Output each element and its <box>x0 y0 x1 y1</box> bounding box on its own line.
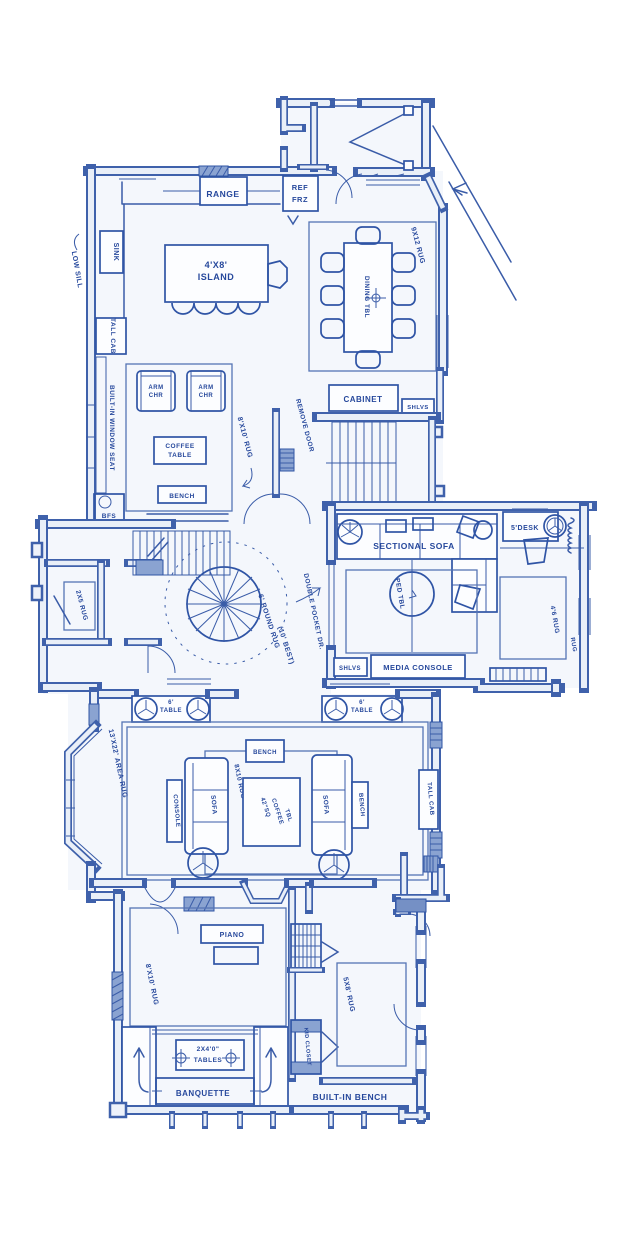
svg-text:6': 6' <box>168 700 174 706</box>
svg-text:FRZ: FRZ <box>292 195 308 204</box>
svg-text:COFFEE: COFFEE <box>165 443 195 450</box>
svg-text:6': 6' <box>359 700 365 706</box>
svg-text:2X4'0": 2X4'0" <box>197 1046 220 1053</box>
svg-text:ARM: ARM <box>198 385 213 391</box>
svg-text:CHR: CHR <box>199 393 214 399</box>
svg-text:CABINET: CABINET <box>343 395 382 404</box>
svg-text:TABLE: TABLE <box>168 452 192 459</box>
svg-text:BUILT-IN WINDOW SEAT: BUILT-IN WINDOW SEAT <box>108 385 115 471</box>
svg-text:CHR: CHR <box>149 393 164 399</box>
svg-text:DINING TBL: DINING TBL <box>363 276 370 318</box>
svg-text:BENCH: BENCH <box>169 493 195 500</box>
svg-text:RANGE: RANGE <box>206 189 239 199</box>
svg-text:MEDIA CONSOLE: MEDIA CONSOLE <box>383 663 453 672</box>
svg-text:BANQUETTE: BANQUETTE <box>176 1089 230 1098</box>
svg-text:TALL CAB: TALL CAB <box>109 318 116 354</box>
svg-text:5'DESK: 5'DESK <box>511 525 539 532</box>
svg-text:SECTIONAL SOFA: SECTIONAL SOFA <box>373 541 454 551</box>
svg-text:PIANO: PIANO <box>220 932 245 939</box>
svg-text:TABLE: TABLE <box>351 708 373 714</box>
svg-text:TABLE: TABLE <box>160 708 182 714</box>
svg-text:TABLES: TABLES <box>194 1057 223 1064</box>
svg-text:REF: REF <box>292 183 309 192</box>
svg-text:SINK: SINK <box>112 243 119 262</box>
svg-text:SHLVS: SHLVS <box>339 666 361 672</box>
svg-text:ARM: ARM <box>148 385 163 391</box>
svg-text:SHLVS: SHLVS <box>407 405 428 411</box>
svg-text:BUILT-IN BENCH: BUILT-IN BENCH <box>313 1092 388 1102</box>
svg-text:ISLAND: ISLAND <box>198 272 235 282</box>
svg-text:4'X8': 4'X8' <box>205 260 228 270</box>
svg-text:BFS: BFS <box>102 513 117 520</box>
svg-text:BENCH: BENCH <box>253 750 277 756</box>
